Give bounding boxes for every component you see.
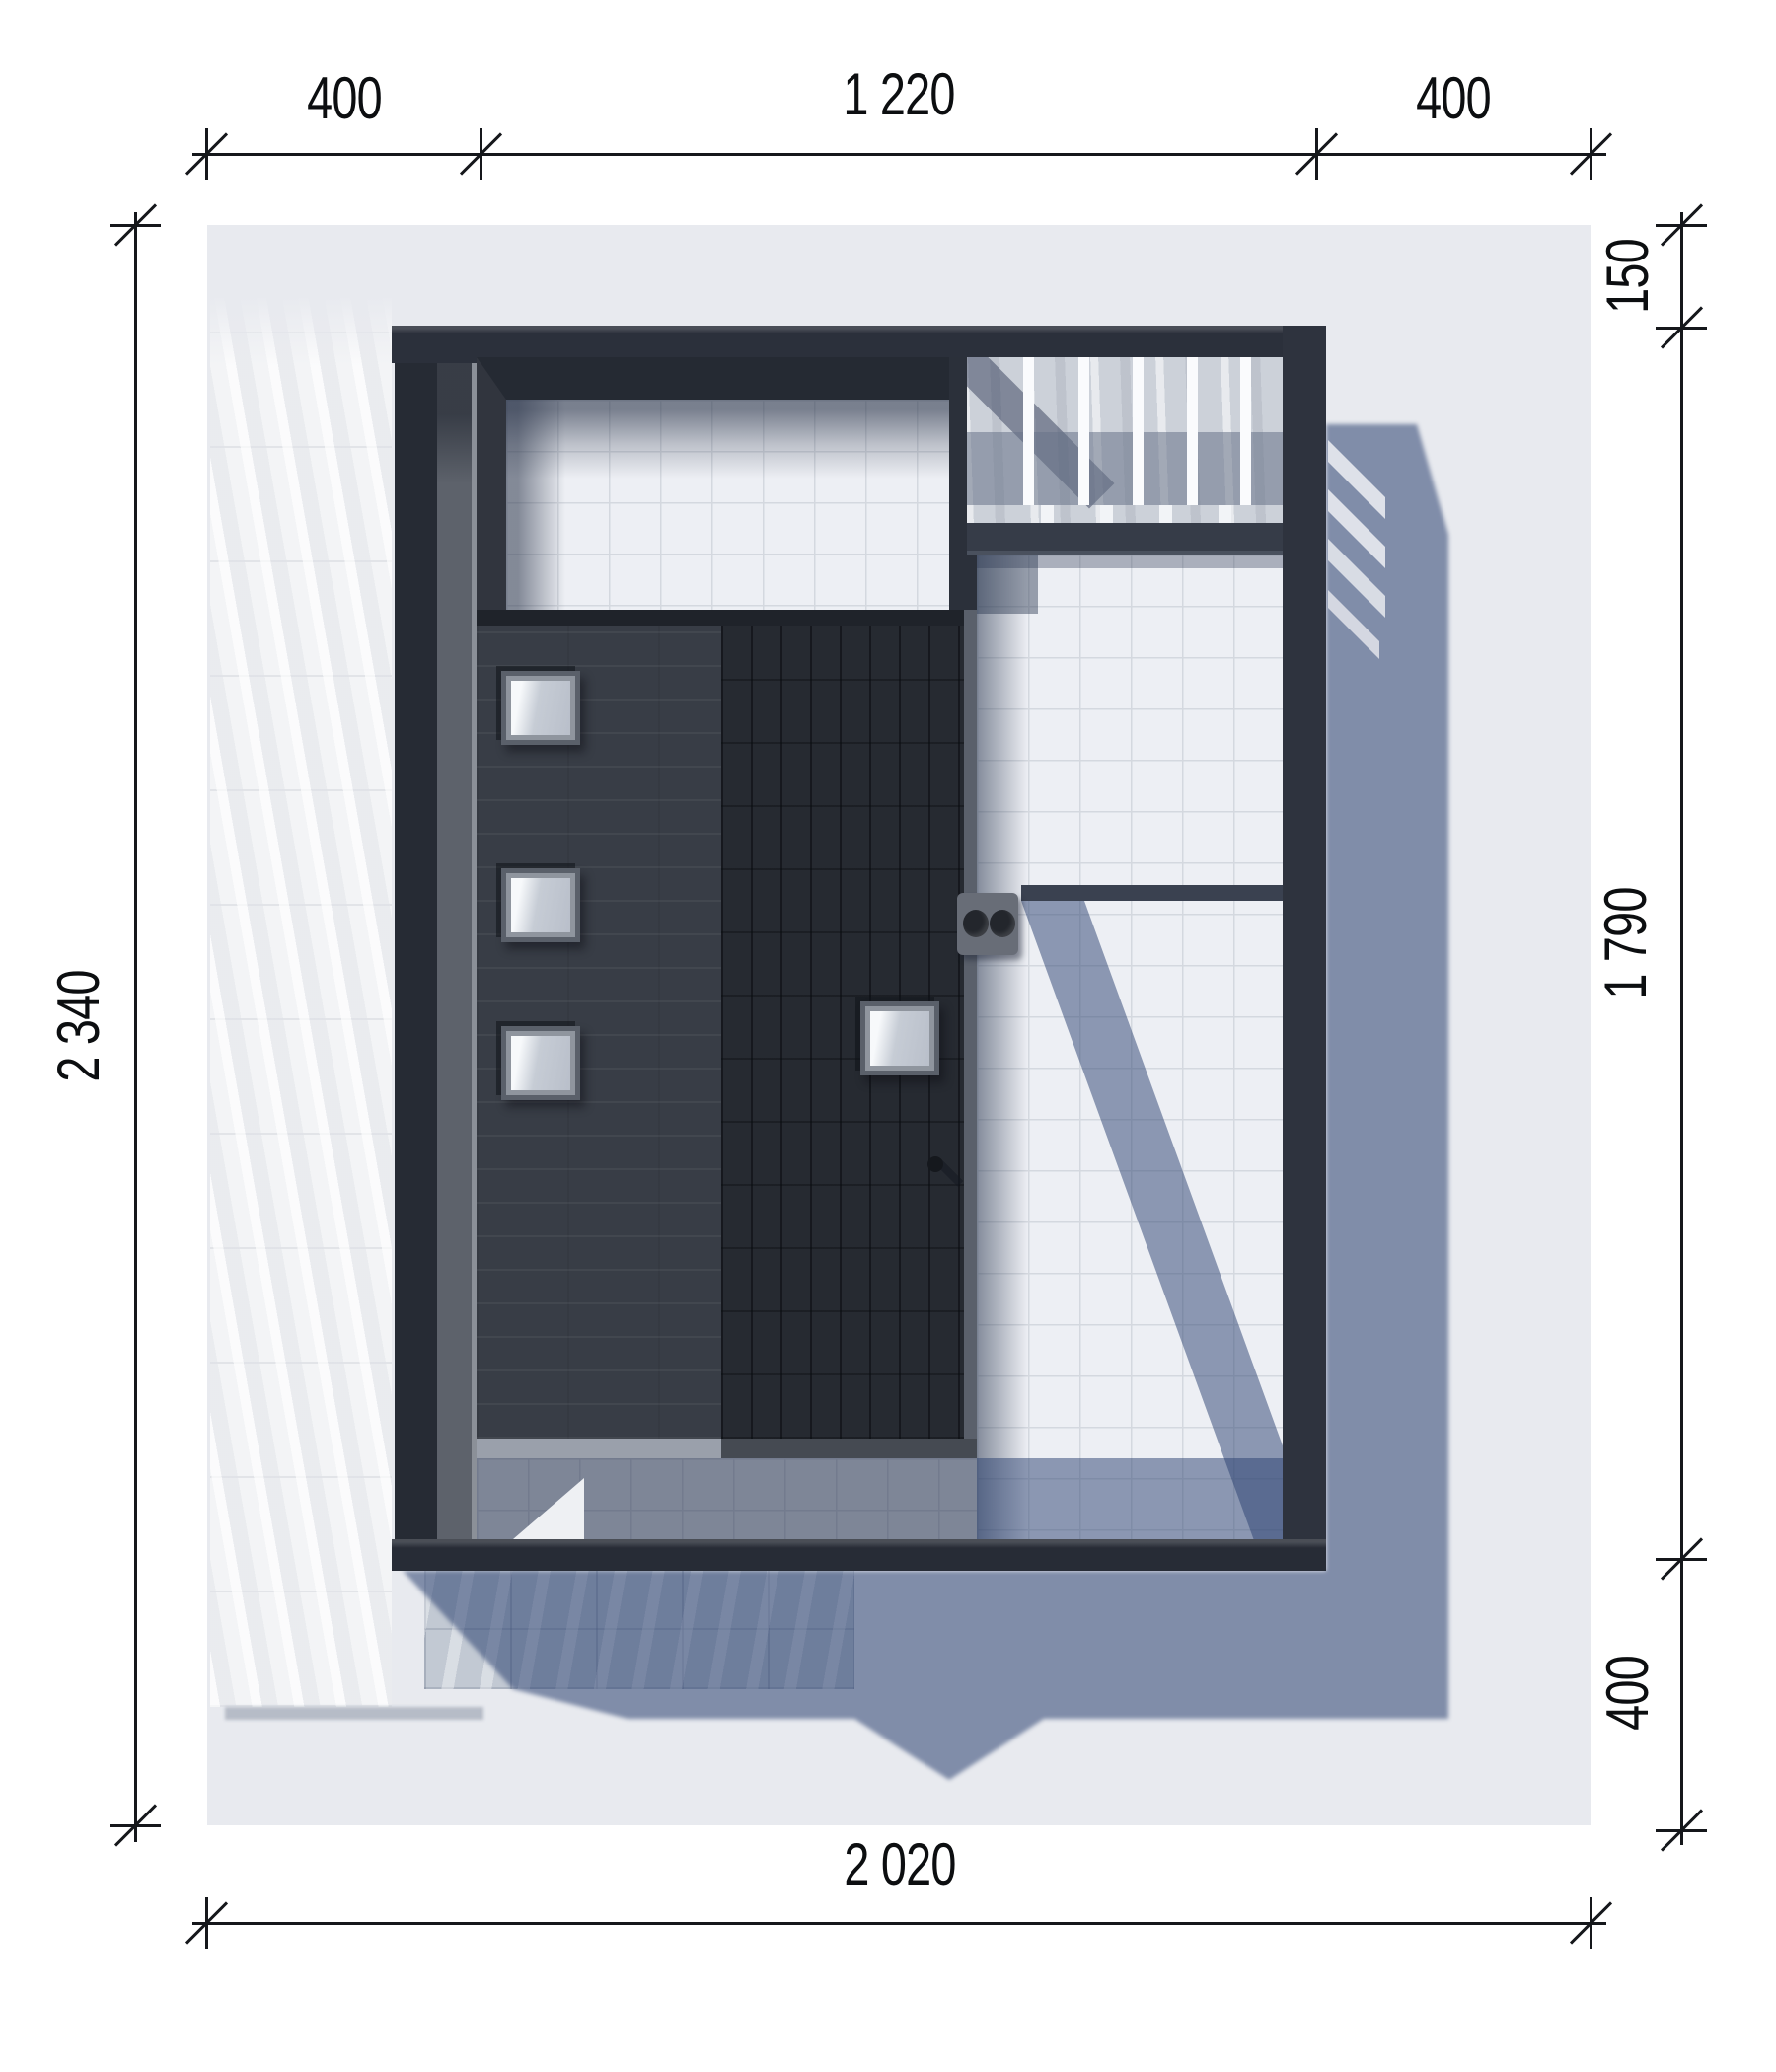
pergola-slat-end bbox=[1041, 505, 1054, 525]
dim-label-right-bottom: 400 bbox=[1598, 1656, 1658, 1731]
pergola-slat-end bbox=[1219, 505, 1231, 525]
skylight bbox=[501, 1026, 580, 1100]
pergola-south-beam bbox=[967, 523, 1283, 555]
skylight-glass bbox=[870, 1011, 929, 1066]
roof-south-fascia-lit bbox=[477, 1439, 721, 1458]
dim-label-top-middle: 1 220 bbox=[843, 65, 954, 124]
dim-line-left bbox=[134, 212, 137, 1842]
dim-label-bottom: 2 020 bbox=[844, 1835, 955, 1894]
dim-line-bottom bbox=[192, 1922, 1606, 1925]
roof-vent bbox=[927, 1156, 943, 1172]
terrace-divider-wall bbox=[1021, 885, 1283, 901]
skylight bbox=[501, 671, 580, 745]
roof-north-fascia bbox=[477, 610, 967, 626]
pergola-slat bbox=[1023, 357, 1034, 505]
east-wall bbox=[1283, 326, 1326, 1571]
dim-label-top-right: 400 bbox=[1416, 69, 1491, 128]
pergola-slat bbox=[1240, 357, 1251, 505]
pergola-shadow-band bbox=[967, 432, 1283, 505]
south-wall bbox=[392, 1539, 1326, 1571]
dim-line-right bbox=[1680, 212, 1683, 1845]
pergola-slat-end bbox=[1100, 505, 1113, 525]
roof-edge-shadow-strip bbox=[977, 555, 1028, 1539]
roof-south-fascia-dark bbox=[721, 1439, 977, 1458]
dim-label-left: 2 340 bbox=[49, 970, 109, 1081]
divider-wall-shadow bbox=[1021, 901, 1283, 1539]
pergola-slat bbox=[1187, 357, 1198, 505]
fixture-knob bbox=[963, 910, 989, 937]
skylight-glass bbox=[511, 681, 570, 735]
dim-label-top-left: 400 bbox=[307, 69, 382, 128]
dim-label-right-top: 150 bbox=[1598, 239, 1658, 314]
pergola-slat-end bbox=[1159, 505, 1172, 525]
west-fence-inner-face bbox=[437, 326, 477, 1539]
fixture-knob bbox=[990, 910, 1015, 937]
dim-label-right-middle: 1 790 bbox=[1596, 887, 1656, 999]
terrace-south-shadow bbox=[977, 1458, 1283, 1539]
roof bbox=[477, 610, 967, 1439]
dim-line-top bbox=[192, 153, 1606, 156]
pergola-slat bbox=[1078, 357, 1089, 505]
skylight bbox=[501, 868, 580, 942]
north-terrace bbox=[477, 357, 952, 610]
north-terrace-shadow bbox=[506, 400, 952, 610]
west-fence-wall bbox=[395, 326, 437, 1539]
pergola-slat bbox=[1133, 357, 1144, 505]
wall-fixture bbox=[957, 893, 1018, 955]
skylight-glass bbox=[511, 1036, 570, 1090]
site-plan-canvas: 400 1 220 400 2 340 150 1 790 400 2 020 bbox=[0, 0, 1776, 2072]
roof-east-edge bbox=[964, 610, 977, 1439]
pergola bbox=[967, 357, 1283, 555]
east-terrace bbox=[977, 555, 1283, 1539]
skylight bbox=[860, 1001, 939, 1075]
south-terrace-strip bbox=[477, 1439, 977, 1539]
beam-contact-shadow bbox=[977, 555, 1283, 568]
skylight-glass bbox=[511, 878, 570, 932]
